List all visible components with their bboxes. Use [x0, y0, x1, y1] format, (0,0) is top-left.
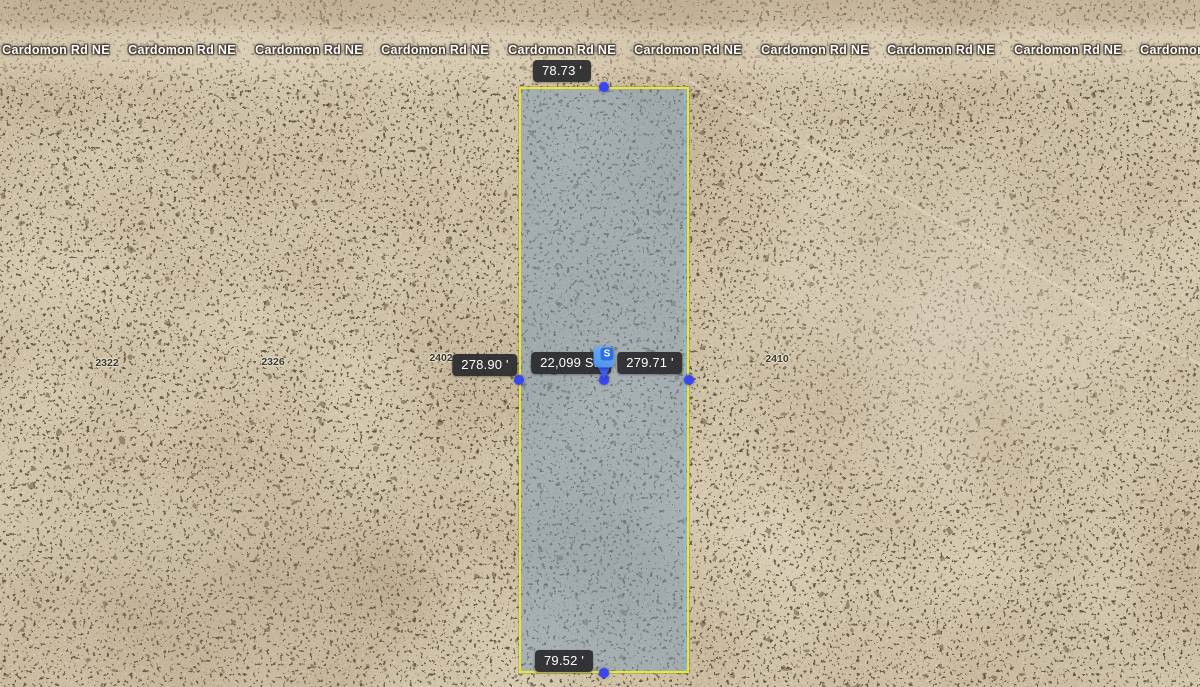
road-label: Cardomon Rd NE: [887, 43, 995, 57]
road-label: Cardomon Rd NE: [128, 43, 236, 57]
map-pin-letter: S: [601, 348, 614, 361]
edge-length-label-right: 279.71 ': [617, 352, 682, 374]
map-pin-marker[interactable]: S: [594, 347, 615, 368]
parcel-vertex-handle[interactable]: [599, 668, 609, 678]
road-label: Cardomon Rd NE: [2, 43, 110, 57]
parcel-vertex-handle[interactable]: [599, 82, 609, 92]
parcel-vertex-handle[interactable]: [684, 375, 694, 385]
map-viewport[interactable]: Cardomon Rd NECardomon Rd NECardomon Rd …: [0, 0, 1200, 687]
map-pin-tail: [597, 366, 611, 379]
road-label: Cardomon Rd NE: [381, 43, 489, 57]
parcel-number-label: 2402: [429, 352, 452, 364]
road-label: Cardomon Rd NE: [1140, 43, 1200, 57]
parcel-vertex-handle[interactable]: [514, 375, 524, 385]
road-label: Cardomon Rd NE: [508, 43, 616, 57]
parcel-number-label: 2322: [95, 357, 118, 369]
parcel-number-label: 2326: [261, 356, 284, 368]
edge-length-label-left: 278.90 ': [452, 354, 517, 376]
edge-length-label-top: 78.73 ': [533, 60, 591, 82]
edge-length-label-bottom: 79.52 ': [535, 650, 593, 672]
parcel-number-label: 2410: [765, 353, 788, 365]
road-label: Cardomon Rd NE: [1014, 43, 1122, 57]
road-label: Cardomon Rd NE: [255, 43, 363, 57]
road-label: Cardomon Rd NE: [761, 43, 869, 57]
road-label: Cardomon Rd NE: [634, 43, 742, 57]
